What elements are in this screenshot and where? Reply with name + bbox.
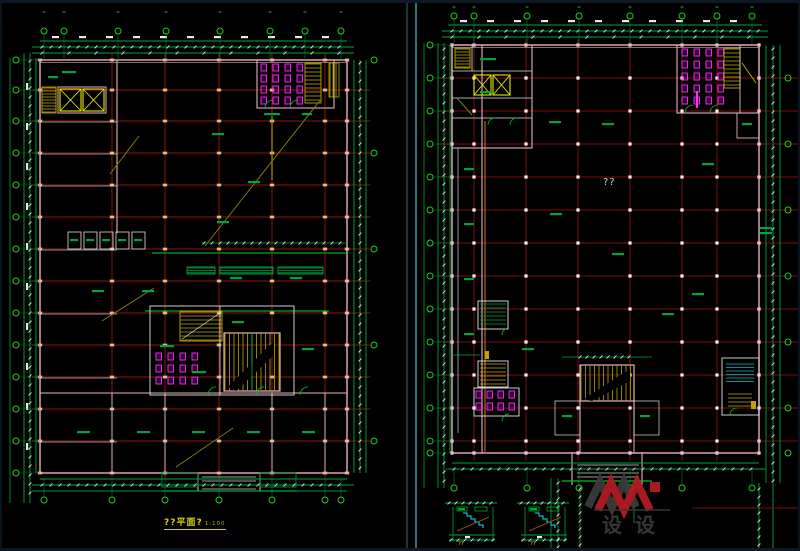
left-plan-title: ??平面?1:100: [164, 515, 226, 530]
cad-drawing-canvas: ??平面?1:100 ?? ?? ?? 设设: [0, 0, 800, 551]
plan-title-text: ??平面?: [164, 518, 203, 528]
watermark-logo: 设设: [578, 469, 682, 547]
stair-detail-label-2: ??: [526, 541, 540, 549]
right-plan-center-label: ??: [603, 177, 616, 188]
stair-detail-label-1: ??: [454, 541, 468, 549]
watermark-text: 设设: [602, 509, 668, 538]
plan-scale-text: 1:100: [205, 521, 226, 527]
